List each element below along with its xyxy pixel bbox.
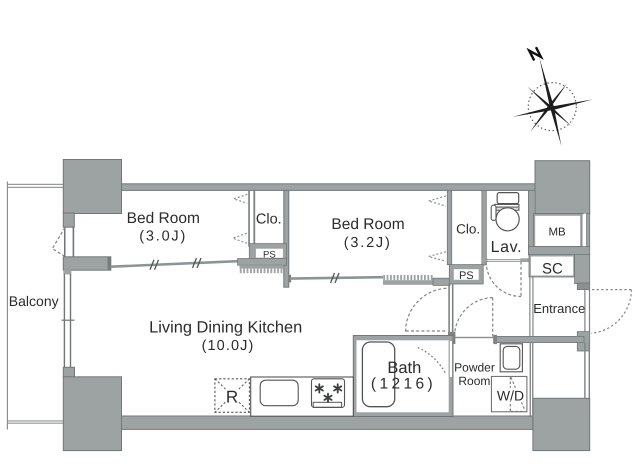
svg-text:Bath: Bath (387, 359, 421, 377)
svg-text:(3.2J): (3.2J) (344, 235, 392, 251)
svg-text:Living Dining Kitchen: Living Dining Kitchen (149, 319, 302, 337)
svg-text:SC: SC (542, 261, 563, 278)
svg-text:R: R (226, 387, 238, 406)
svg-text:(10.0J): (10.0J) (202, 338, 255, 354)
svg-text:Balcony: Balcony (9, 293, 59, 309)
svg-text:Clo.: Clo. (456, 221, 480, 236)
svg-text:Bed Room: Bed Room (127, 210, 200, 227)
svg-text:Lav.: Lav. (491, 239, 522, 256)
svg-text:MB: MB (548, 226, 566, 238)
svg-text:(3.0J): (3.0J) (139, 228, 187, 244)
svg-text:(1216): (1216) (371, 375, 436, 392)
svg-text:PS: PS (459, 270, 474, 282)
svg-text:W/D: W/D (497, 387, 524, 403)
svg-text:Room: Room (458, 374, 490, 388)
svg-text:Bed Room: Bed Room (331, 216, 404, 233)
svg-text:Clo.: Clo. (256, 212, 282, 228)
svg-text:Powder: Powder (454, 361, 495, 375)
svg-text:Entrance: Entrance (533, 301, 585, 316)
